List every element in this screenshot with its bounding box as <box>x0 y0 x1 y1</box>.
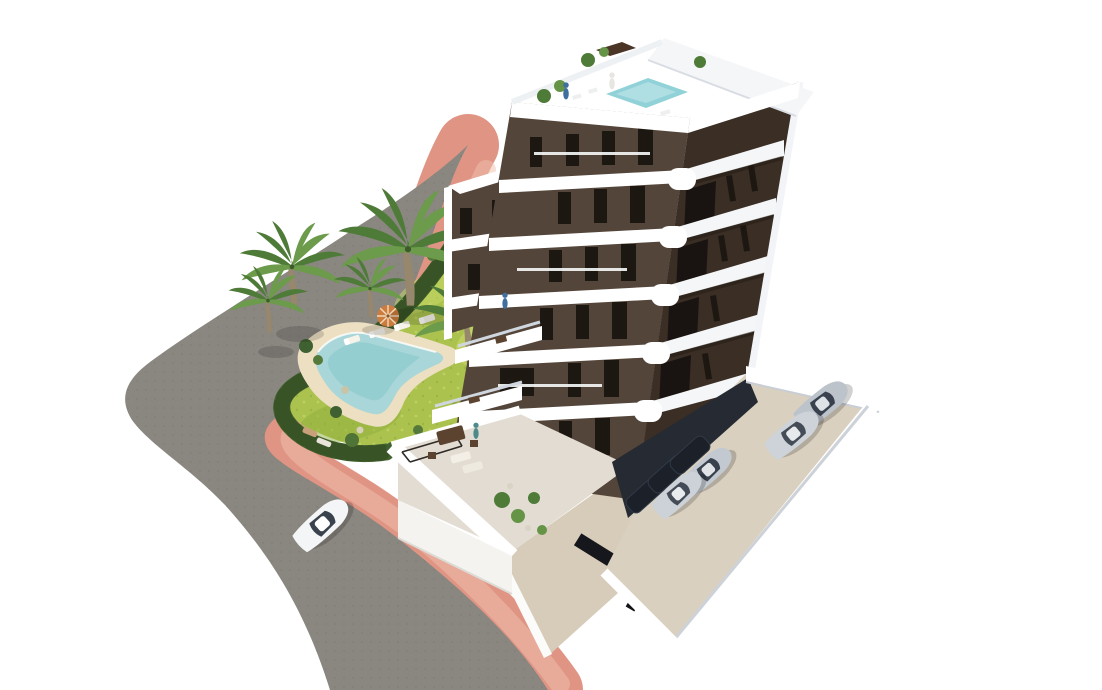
person-roof-1 <box>563 82 569 99</box>
person-terrace <box>473 423 478 439</box>
architectural-render <box>0 0 1102 690</box>
person-roof-2 <box>609 72 615 89</box>
person-balcony <box>502 293 507 309</box>
render-canvas <box>0 0 1102 690</box>
